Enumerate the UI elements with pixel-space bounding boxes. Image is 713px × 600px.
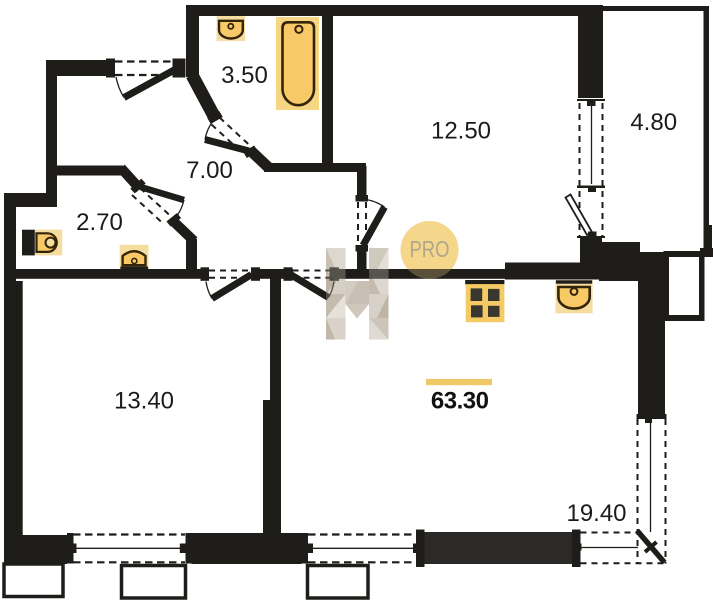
svg-text:2.70: 2.70 <box>76 209 123 236</box>
svg-text:3.50: 3.50 <box>221 62 268 89</box>
svg-text:7.00: 7.00 <box>186 157 233 184</box>
svg-text:4.80: 4.80 <box>630 109 677 136</box>
svg-text:12.50: 12.50 <box>431 118 491 145</box>
svg-text:19.40: 19.40 <box>566 500 626 527</box>
svg-text:13.40: 13.40 <box>114 388 174 415</box>
svg-text:63.30: 63.30 <box>431 387 489 414</box>
